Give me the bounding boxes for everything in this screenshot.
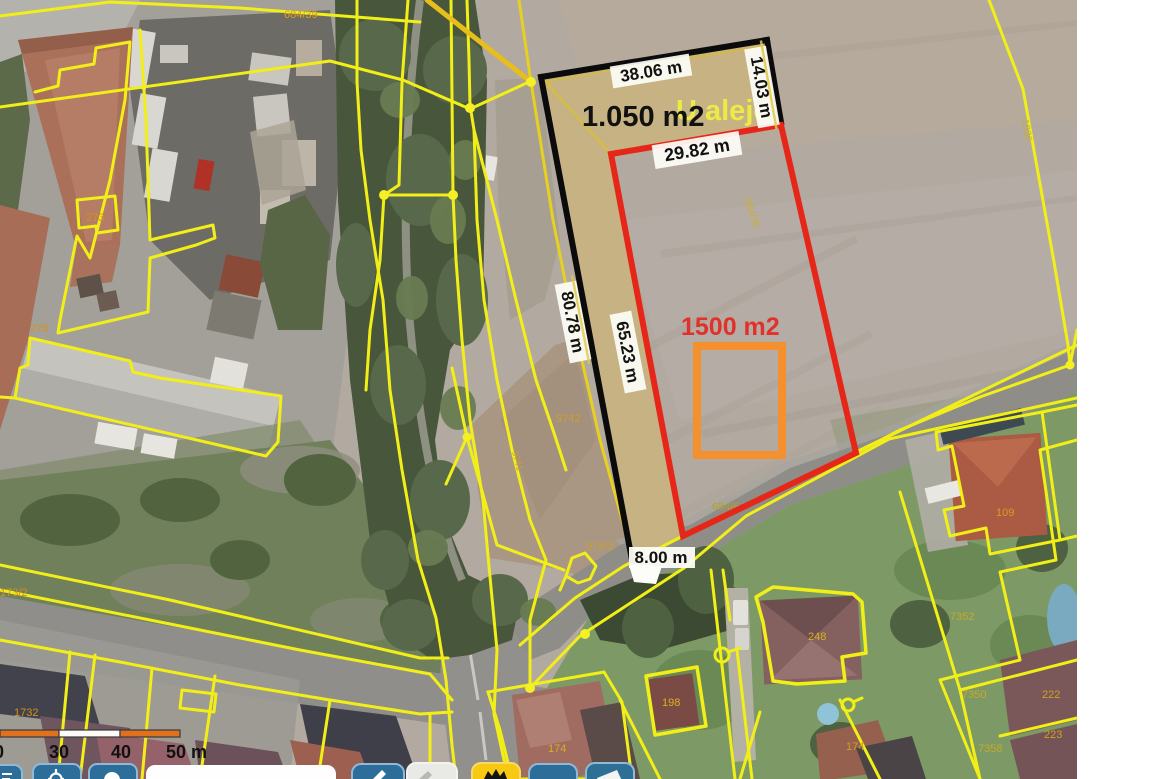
svg-text:222: 222 <box>1042 689 1060 701</box>
svg-text:0: 0 <box>0 742 4 762</box>
svg-text:1500 m2: 1500 m2 <box>681 313 780 341</box>
svg-text:173/2: 173/2 <box>0 587 28 599</box>
svg-text:223: 223 <box>1044 729 1062 741</box>
svg-text:7350: 7350 <box>962 689 986 701</box>
svg-text:9742: 9742 <box>556 413 580 425</box>
svg-text:174: 174 <box>846 741 864 753</box>
svg-text:174: 174 <box>548 743 566 755</box>
svg-text:8.00 m: 8.00 m <box>635 548 688 567</box>
svg-text:50 m: 50 m <box>166 742 207 762</box>
svg-text:1732: 1732 <box>14 707 38 719</box>
svg-text:1.050 m2: 1.050 m2 <box>582 101 705 133</box>
svg-text:275: 275 <box>30 323 48 335</box>
svg-text:273: 273 <box>86 212 104 224</box>
svg-text:684/39: 684/39 <box>284 9 318 21</box>
svg-text:30: 30 <box>49 742 69 762</box>
svg-text:248: 248 <box>808 631 826 643</box>
svg-text:198: 198 <box>662 697 680 709</box>
svg-text:7352: 7352 <box>950 611 974 623</box>
svg-text:974/3: 974/3 <box>586 541 614 553</box>
svg-text:7358: 7358 <box>978 743 1002 755</box>
svg-text:40: 40 <box>111 742 131 762</box>
svg-text:109: 109 <box>996 507 1014 519</box>
